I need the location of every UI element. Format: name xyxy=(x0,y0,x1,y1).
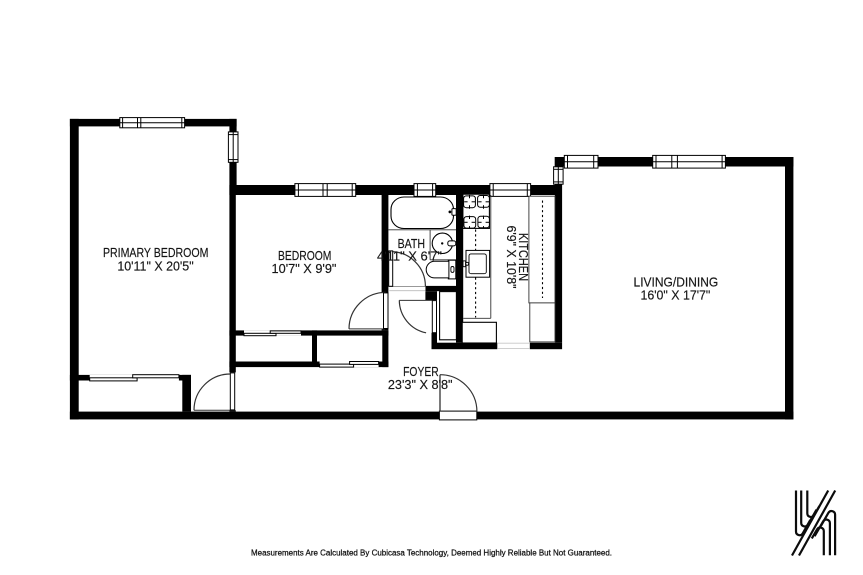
svg-text:10'7" X 9'9": 10'7" X 9'9" xyxy=(272,262,337,276)
svg-text:PRIMARY BEDROOM: PRIMARY BEDROOM xyxy=(103,246,209,260)
svg-text:4'11" X 6'7": 4'11" X 6'7" xyxy=(377,250,442,264)
svg-text:16'0" X 17'7": 16'0" X 17'7" xyxy=(640,289,710,303)
svg-text:Measurements Are Calculated By: Measurements Are Calculated By Cubicasa … xyxy=(251,549,612,558)
svg-text:6'9" X 10'8": 6'9" X 10'8" xyxy=(504,226,518,289)
svg-text:10'11" X 20'5": 10'11" X 20'5" xyxy=(117,259,193,273)
svg-text:BEDROOM: BEDROOM xyxy=(278,249,332,263)
svg-text:23'3" X 8'8": 23'3" X 8'8" xyxy=(388,378,453,392)
